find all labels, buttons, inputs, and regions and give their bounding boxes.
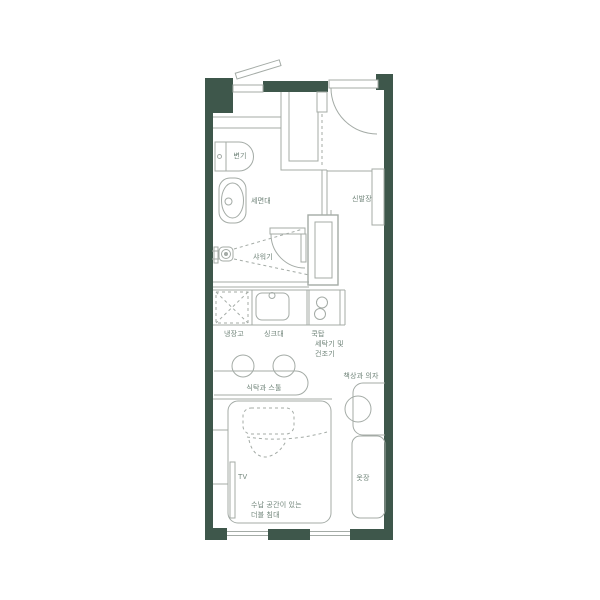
wardrobe-label: 옷장 [356, 473, 370, 482]
entry-door-leaf [329, 80, 378, 88]
washer-dryer-label-2: 건조기 [315, 349, 335, 358]
desk-chair [345, 396, 371, 422]
pillow [243, 408, 294, 434]
washbasin-counter [219, 178, 246, 223]
wall-bottom-middle [268, 529, 310, 540]
floor-plan-page: 변기 세면대 샤워기 신발장 냉장고 싱크대 쿡탑 세탁기 및 건조기 식탁과 … [0, 0, 600, 600]
shower-spray-upper [234, 229, 303, 249]
bed-label-1: 수납 공간이 있는 [251, 500, 302, 509]
labels: 변기 세면대 샤워기 신발장 냉장고 싱크대 쿡탑 세탁기 및 건조기 식탁과 … [224, 151, 379, 519]
entrance-door-frame [233, 85, 263, 92]
refrigerator-label: 냉장고 [224, 329, 244, 338]
desk [353, 383, 385, 435]
shower-head-center [225, 253, 228, 256]
blanket-line [247, 432, 327, 439]
bathroom-doorjamb-top [317, 92, 327, 112]
stool-1 [232, 355, 254, 377]
stool-2 [273, 355, 295, 377]
dining-label: 식탁과 스툴 [246, 383, 282, 392]
desk-chair-label: 책상과 의자 [343, 371, 379, 380]
washbasin-drain [225, 198, 232, 205]
bathroom-doorjamb [301, 234, 306, 262]
walls [205, 74, 393, 540]
bed-label-2: 더블 침대 [251, 510, 280, 519]
entrance-door-leaf [235, 60, 281, 79]
entry-door-swing-arc [331, 88, 377, 134]
cooktop-burner-1 [317, 297, 328, 308]
entrance-door-leaf-group [235, 60, 281, 79]
washer-dryer-label-1: 세탁기 및 [315, 339, 344, 348]
wall-top [263, 81, 328, 92]
wall-top-left-block [205, 78, 233, 113]
shoe-cabinet [372, 169, 384, 225]
wall-bottom-right [350, 529, 393, 540]
refrigerator-cross [216, 292, 248, 323]
shower-bracket [214, 247, 218, 263]
tv-label: TV [238, 474, 247, 481]
bathroom-door-swing-arc [271, 234, 305, 268]
desk-wardrobe [345, 383, 385, 518]
wall-bottom-left [205, 528, 227, 540]
toilet-label: 변기 [233, 151, 246, 160]
entry-utility [308, 169, 384, 285]
partitions [213, 92, 372, 484]
sink-label: 싱크대 [264, 329, 284, 338]
cooktop-label: 쿡탑 [311, 330, 325, 338]
floor-plan: 변기 세면대 샤워기 신발장 냉장고 싱크대 쿡탑 세탁기 및 건조기 식탁과 … [0, 0, 600, 600]
sink-basin [256, 293, 289, 320]
shoe-cabinet-label: 신발장 [352, 194, 372, 203]
cooktop-burner-2 [315, 309, 326, 320]
shower-label: 샤워기 [253, 252, 273, 261]
tv [230, 462, 235, 518]
core-wall-inner [289, 92, 318, 161]
toilet-flush-button [218, 155, 222, 159]
washbasin-label: 세면대 [251, 196, 271, 205]
wall-left [205, 113, 213, 540]
blanket-fold [249, 440, 286, 457]
kitchen [213, 290, 345, 325]
washer-dryer-unit [308, 215, 338, 285]
washer-dryer-door [315, 222, 332, 278]
